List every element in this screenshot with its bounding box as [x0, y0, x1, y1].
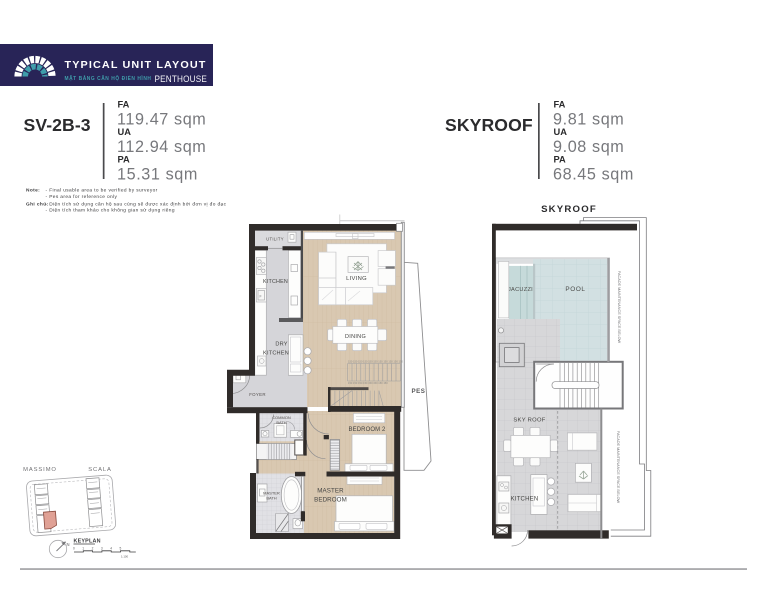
- svg-text:PA: PA: [554, 155, 567, 165]
- svg-text:Note:: Note:: [26, 188, 40, 194]
- svg-text:3: 3: [101, 547, 103, 551]
- svg-text:POOL: POOL: [565, 286, 585, 293]
- svg-text:BEDROOM: BEDROOM: [314, 496, 347, 503]
- svg-text:2: 2: [92, 547, 94, 551]
- svg-text:F: F: [260, 295, 262, 299]
- svg-text:MASSIMO: MASSIMO: [23, 467, 57, 473]
- svg-text:KEYPLAN: KEYPLAN: [74, 538, 101, 544]
- svg-text:FA: FA: [118, 100, 130, 110]
- svg-text:15.31 sqm: 15.31 sqm: [117, 166, 198, 184]
- svg-text:- Final usable area to be veri: - Final usable area to be verified by su…: [46, 188, 158, 194]
- svg-text:BATH: BATH: [266, 496, 276, 501]
- svg-text:SKY ROOF: SKY ROOF: [513, 418, 545, 424]
- svg-text:1:100: 1:100: [121, 555, 128, 559]
- svg-text:N: N: [67, 542, 70, 547]
- svg-text:UA: UA: [118, 127, 132, 137]
- svg-text:PA: PA: [118, 155, 131, 165]
- svg-text:TYPICAL UNIT LAYOUT: TYPICAL UNIT LAYOUT: [65, 59, 207, 71]
- svg-text:- Diện tích tham khảo cho khôn: - Diện tích tham khảo cho không gian sử …: [46, 207, 175, 214]
- svg-text:UA: UA: [554, 127, 568, 137]
- svg-text:KITCHEN: KITCHEN: [263, 351, 289, 357]
- svg-text:FOYER: FOYER: [249, 392, 266, 397]
- svg-text:SKYROOF: SKYROOF: [445, 115, 533, 135]
- svg-text:1: 1: [82, 547, 84, 551]
- svg-text:112.94 sqm: 112.94 sqm: [117, 138, 206, 156]
- svg-text:DRY: DRY: [275, 342, 287, 348]
- svg-text:- Pes area for reference only: - Pes area for reference only: [46, 194, 118, 200]
- svg-text:68.45 sqm: 68.45 sqm: [553, 166, 634, 184]
- svg-text:FACADE MAINTENANCE SPACE BELOW: FACADE MAINTENANCE SPACE BELOW: [617, 271, 621, 344]
- svg-text:9.81 sqm: 9.81 sqm: [553, 111, 624, 129]
- svg-text:JACUZZI: JACUZZI: [508, 287, 533, 293]
- svg-text:- Diện tích sử dụng căn hộ sau: - Diện tích sử dụng căn hộ sau cùng sẽ đ…: [46, 201, 227, 208]
- svg-text:150 150 150 150 150 150 150 15: 150 150 150 150 150 150 150 150: [348, 381, 388, 385]
- svg-text:PENTHOUSE: PENTHOUSE: [155, 74, 208, 84]
- svg-text:SKYROOF: SKYROOF: [541, 204, 597, 215]
- svg-text:MẶT BẰNG CĂN HỘ ĐIỂN HÌNH: MẶT BẰNG CĂN HỘ ĐIỂN HÌNH: [65, 74, 152, 82]
- svg-text:BEDROOM 2: BEDROOM 2: [349, 427, 386, 433]
- svg-text:DINING: DINING: [345, 334, 366, 340]
- svg-text:MASTER: MASTER: [317, 487, 344, 494]
- svg-text:119.47 sqm: 119.47 sqm: [117, 111, 206, 129]
- svg-text:PES: PES: [412, 388, 426, 395]
- svg-text:5: 5: [120, 547, 122, 551]
- svg-text:BATH: BATH: [276, 420, 286, 425]
- svg-text:KITCHEN: KITCHEN: [263, 279, 288, 285]
- svg-text:0: 0: [73, 547, 75, 551]
- svg-text:FACADE MAINTENANCE SPACE BELOW: FACADE MAINTENANCE SPACE BELOW: [616, 431, 620, 504]
- svg-text:FA: FA: [554, 100, 566, 110]
- svg-text:UTILITY: UTILITY: [266, 236, 284, 241]
- svg-text:SCALA: SCALA: [88, 467, 112, 473]
- svg-text:9.08 sqm: 9.08 sqm: [553, 138, 624, 156]
- svg-text:SV-2B-3: SV-2B-3: [24, 115, 91, 135]
- svg-text:4: 4: [110, 547, 112, 551]
- svg-text:LIVING: LIVING: [346, 276, 367, 282]
- svg-text:150 150 150 150 150 150 150 15: 150 150 150 150 150 150 150 150 150 150 …: [348, 359, 403, 363]
- svg-text:KITCHEN: KITCHEN: [511, 496, 539, 502]
